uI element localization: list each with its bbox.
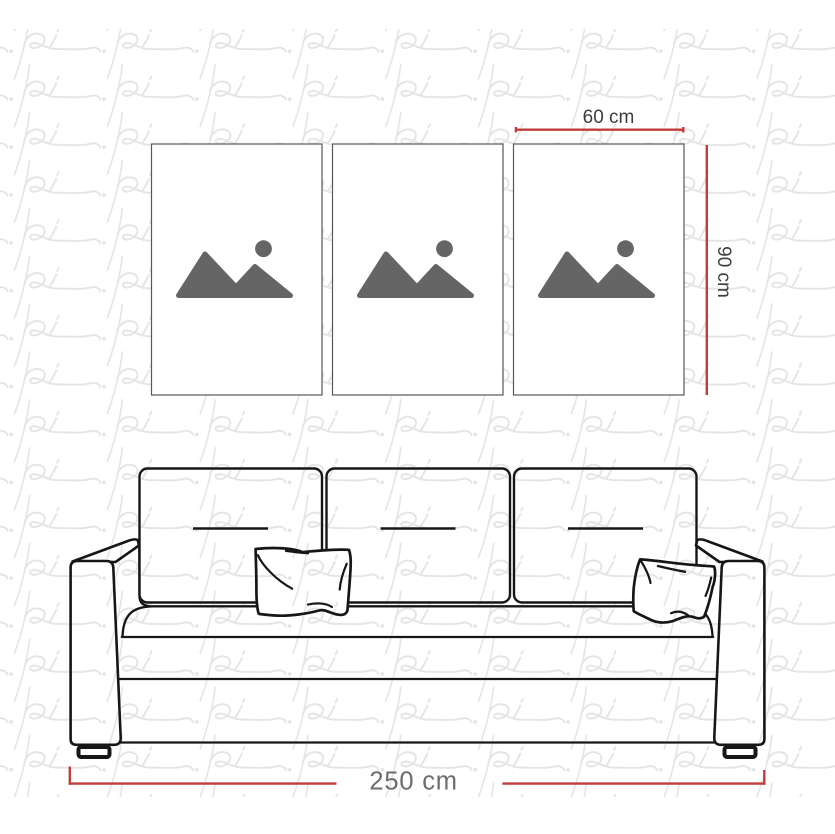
svg-text:60 cm: 60 cm [583,107,635,128]
svg-text:250 cm: 250 cm [369,768,457,796]
svg-text:90 cm: 90 cm [713,246,734,298]
